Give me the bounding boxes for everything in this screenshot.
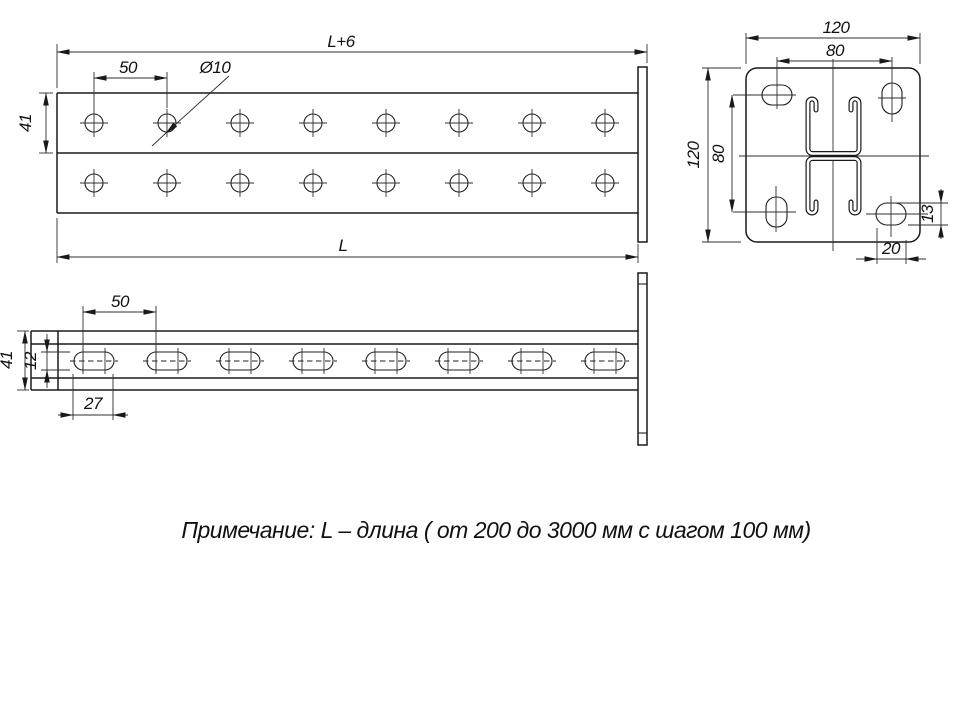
dim-overall-length-label: L+6 [327, 32, 355, 51]
hole-marker [591, 169, 619, 197]
dim-slot-pitch-vertical: 80 [709, 95, 732, 212]
dim-slot-length: 27 [58, 374, 128, 420]
drawing-note: Примечание: L – длина ( от 200 до 3000 м… [181, 517, 810, 543]
dim-slot-pitch-horizontal-label: 80 [826, 41, 845, 60]
technical-drawing-page: L+6 L 41 50 Ø10 [0, 0, 960, 720]
dim-slot-pitch-label: 50 [111, 292, 130, 311]
dim-slot-width-label: 20 [881, 239, 901, 258]
hole-marker [226, 169, 254, 197]
dim-overall-length: L+6 [57, 32, 647, 88]
section-view: 120 80 120 80 13 [684, 18, 948, 264]
hole-marker [299, 169, 327, 197]
dim-slot-length-label: 27 [83, 394, 103, 413]
hole-marker [445, 169, 473, 197]
hole-marker [591, 109, 619, 137]
slot-marker [435, 348, 483, 374]
hole-marker [518, 169, 546, 197]
double-channel-profile [808, 99, 859, 213]
hole-marker [372, 109, 400, 137]
hole-marker [372, 169, 400, 197]
slot-marker [508, 348, 556, 374]
dim-slot-height-label: 13 [918, 204, 937, 223]
dim-slot-pitch-horizontal: 80 [777, 41, 892, 61]
dim-height-label: 41 [0, 351, 16, 369]
dim-row-height-label: 41 [16, 114, 35, 132]
hole-marker [226, 109, 254, 137]
dim-length-label: L [339, 236, 348, 255]
dim-row-height: 41 [16, 93, 53, 153]
side-end-plate [638, 273, 647, 445]
hole-marker [80, 169, 108, 197]
dim-hole-pitch-label: 50 [119, 58, 138, 77]
slot-marker [143, 348, 191, 374]
dim-hole-diameter-label: Ø10 [199, 58, 232, 77]
dim-plate-width-label: 120 [823, 18, 851, 37]
hole-marker [299, 109, 327, 137]
dim-length: L [57, 218, 638, 263]
hole-marker [153, 169, 181, 197]
dim-slot-pitch: 50 [83, 292, 156, 374]
hole-marker [518, 109, 546, 137]
hole-marker [445, 109, 473, 137]
front-end-plate [638, 67, 647, 242]
strut-drawing-canvas: L+6 L 41 50 Ø10 [0, 0, 960, 720]
dim-slot-pitch-vertical-label: 80 [709, 144, 728, 163]
dim-side-slot-height: 12 [21, 334, 70, 388]
slot-marker [289, 348, 337, 374]
slot-marker [362, 348, 410, 374]
side-slot-pattern [70, 348, 629, 374]
section-corner-slots [733, 57, 928, 237]
side-view: 50 41 12 27 [0, 273, 647, 445]
dim-hole-pitch: 50 [94, 58, 167, 110]
front-view: L+6 L 41 50 Ø10 [16, 32, 647, 263]
hole-marker [80, 109, 108, 137]
dim-hole-diameter: Ø10 [152, 58, 231, 146]
slot-marker [70, 348, 118, 374]
slot-marker [581, 348, 629, 374]
dim-plate-height-label: 120 [684, 141, 703, 169]
slot-marker [216, 348, 264, 374]
dim-side-slot-height-label: 12 [21, 351, 40, 370]
